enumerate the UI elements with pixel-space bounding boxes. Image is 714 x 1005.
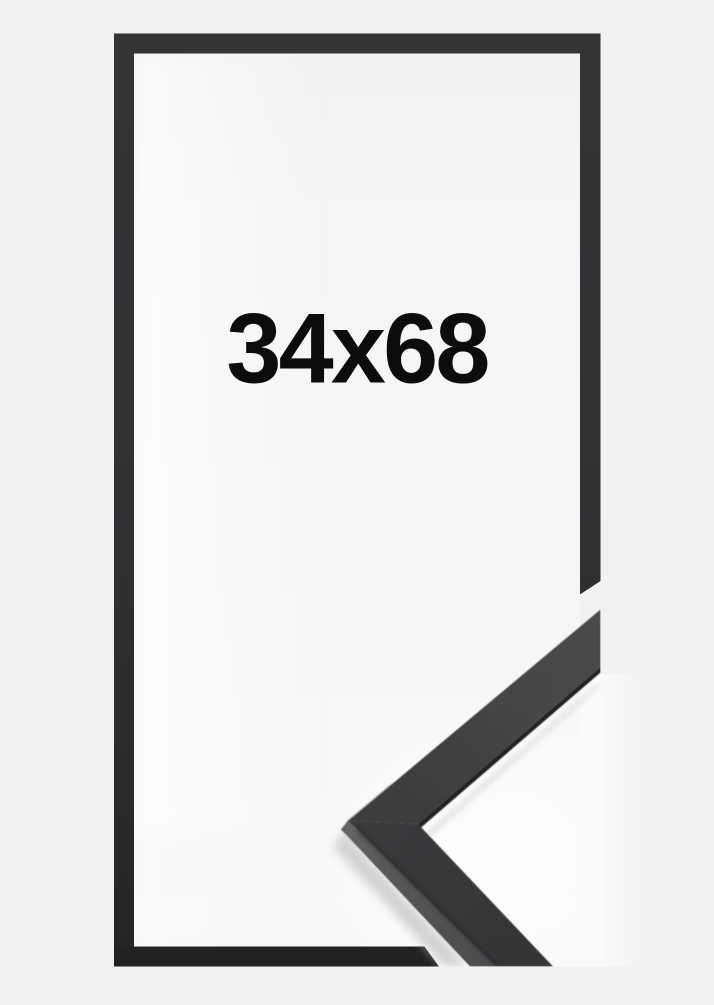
svg-text:34x68: 34x68 [226, 293, 488, 404]
